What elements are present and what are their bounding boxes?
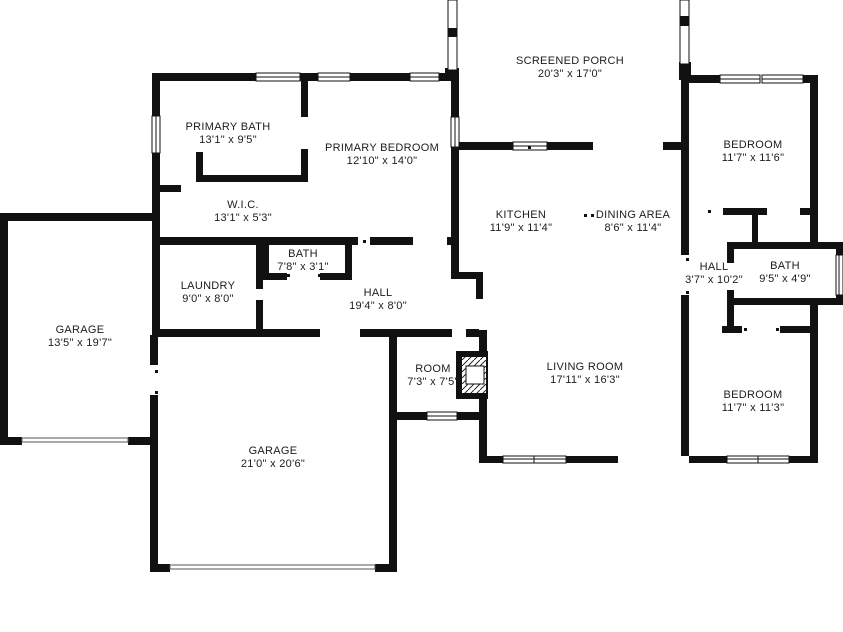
floor-plan: PRIMARY BATH 13'1" x 9'5" PRIMARY BEDROO…: [0, 0, 843, 632]
room-label-hall-left: HALL 19'4" x 8'0": [293, 287, 463, 313]
room-dims: 19'4" x 8'0": [293, 300, 463, 313]
room-name: LAUNDRY: [123, 280, 293, 293]
kitchen-walls: [451, 72, 483, 299]
room-dims: 9'5" x 4'9": [700, 273, 843, 286]
room-label-primary-bath: PRIMARY BATH 13'1" x 9'5": [143, 121, 313, 147]
room-dims: 13'1" x 5'3": [158, 212, 328, 225]
room-name: LIVING ROOM: [500, 361, 670, 374]
room-label-garage-left: GARAGE 13'5" x 19'7": [0, 324, 165, 350]
room-label-screened-porch: SCREENED PORCH 20'3" x 17'0": [485, 55, 655, 81]
room-label-bedroom-bottom: BEDROOM 11'7" x 11'3": [668, 389, 838, 415]
room-name: SCREENED PORCH: [485, 55, 655, 68]
room-label-primary-bedroom: PRIMARY BEDROOM 12'10" x 14'0": [297, 142, 467, 168]
room-name: BEDROOM: [668, 389, 838, 402]
room-label-wic: W.I.C. 13'1" x 5'3": [158, 199, 328, 225]
room-dims: 13'5" x 19'7": [0, 337, 165, 350]
room-dims: 12'10" x 14'0": [297, 155, 467, 168]
walls-layer: [0, 0, 843, 632]
room-dims: 20'3" x 17'0": [485, 68, 655, 81]
room-name: DINING AREA: [548, 209, 718, 222]
room-label-laundry: LAUNDRY 9'0" x 8'0": [123, 280, 293, 306]
room-dims: 8'6" x 11'4": [548, 222, 718, 235]
room-name: BATH: [700, 260, 843, 273]
room-dims: 9'0" x 8'0": [123, 293, 293, 306]
room-name: HALL: [293, 287, 463, 300]
room-dims: 13'1" x 9'5": [143, 134, 313, 147]
room-name: GARAGE: [188, 445, 358, 458]
room-dims: 11'7" x 11'3": [668, 402, 838, 415]
room-label-bath-right: BATH 9'5" x 4'9": [700, 260, 843, 286]
room-dims: 21'0" x 20'6": [188, 458, 358, 471]
room-dims: 7'3" x 7'5": [348, 376, 518, 389]
room-name: PRIMARY BEDROOM: [297, 142, 467, 155]
left-garage-walls: [0, 213, 158, 572]
room-dims: 17'11" x 16'3": [500, 374, 670, 387]
room-dims: 7'8" x 3'1": [218, 261, 388, 274]
room-name: W.I.C.: [158, 199, 328, 212]
room-label-room: ROOM 7'3" x 7'5": [348, 363, 518, 389]
room-label-garage-bottom: GARAGE 21'0" x 20'6": [188, 445, 358, 471]
room-name: BATH: [218, 248, 388, 261]
room-dims: 11'7" x 11'6": [668, 152, 838, 165]
room-name: BEDROOM: [668, 139, 838, 152]
room-name: PRIMARY BATH: [143, 121, 313, 134]
room-name: GARAGE: [0, 324, 165, 337]
room-label-bath-small: BATH 7'8" x 3'1": [218, 248, 388, 274]
room-label-dining-area: DINING AREA 8'6" x 11'4": [548, 209, 718, 235]
room-name: ROOM: [348, 363, 518, 376]
room-label-bedroom-top: BEDROOM 11'7" x 11'6": [668, 139, 838, 165]
room-label-living-room: LIVING ROOM 17'11" x 16'3": [500, 361, 670, 387]
